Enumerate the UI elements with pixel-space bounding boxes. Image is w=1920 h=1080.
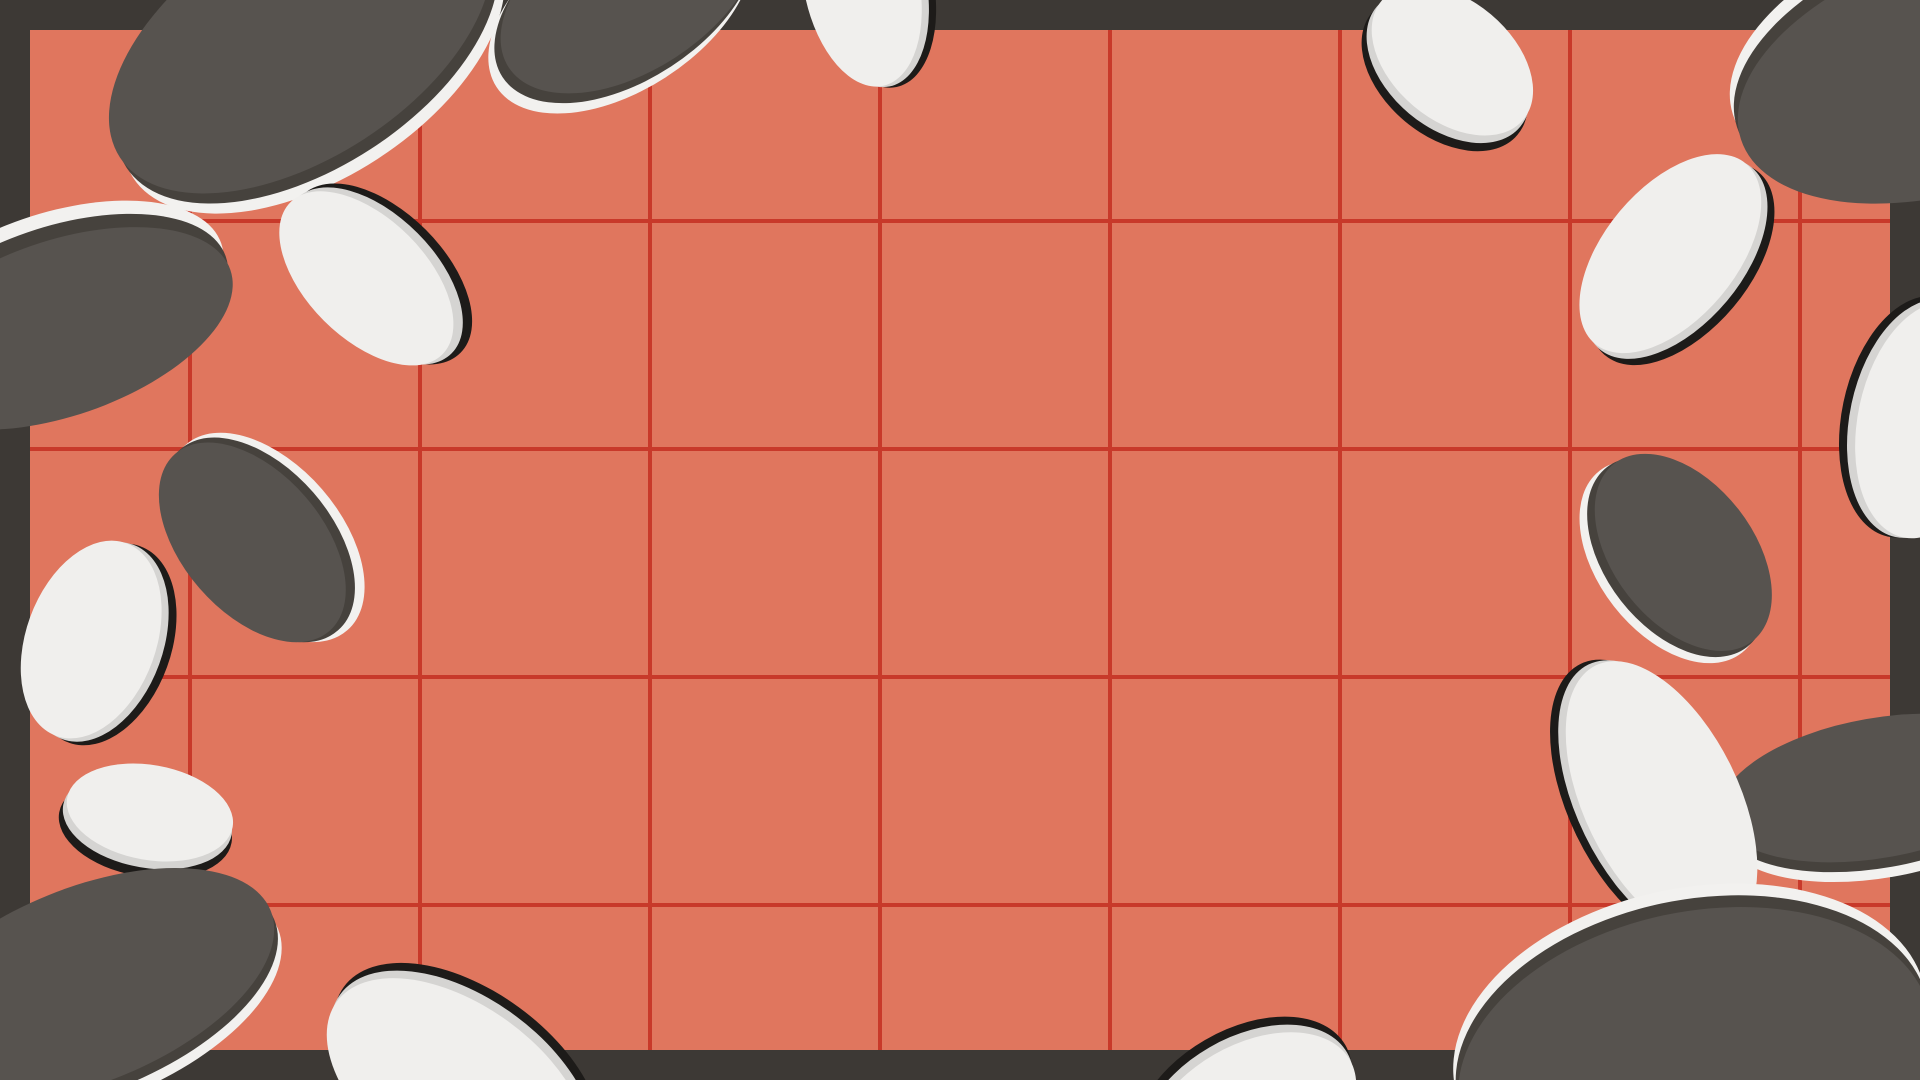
disc-back-face [1542,426,1798,697]
disc-front-face [1343,0,1562,165]
disc-front-face [1429,865,1920,1080]
reversi-disc-dark-7 [1704,0,1920,254]
disc-side-edge [1108,988,1384,1080]
disc-side-edge [1700,0,1920,241]
disc-side-edge [0,829,311,1080]
discs-layer [0,0,1920,1080]
reversi-disc-dark-15 [1708,691,1920,884]
disc-side-edge [1427,854,1920,1080]
reversi-disc-dark-9 [122,407,382,676]
disc-front-face [0,820,307,1080]
reversi-disc-dark-14 [0,820,307,1080]
reversi-disc-dark-4 [463,0,796,136]
disc-front-face [122,407,382,676]
disc-side-edge [62,0,551,266]
disc-side-edge [0,523,194,762]
disc-front-face [1708,691,1920,884]
disc-back-face [1510,629,1786,973]
disc-back-face [258,151,504,397]
disc-side-edge [790,0,947,98]
disc-side-edge [1710,701,1920,894]
disc-side-edge [55,757,241,882]
disc-front-face [1527,631,1798,969]
reversi-disc-dark-1 [56,0,545,256]
reversi-disc-white-10 [0,521,187,758]
disc-back-face [450,0,790,157]
reversi-disc-white-5 [784,0,939,97]
disc-side-edge [126,402,392,678]
disc-front-face [287,933,630,1080]
disc-front-face [1704,0,1920,254]
disc-back-face [6,524,202,766]
disc-front-face [56,0,545,256]
disc-side-edge [1548,125,1803,393]
disc-side-edge [290,925,636,1080]
disc-front-face [0,521,187,758]
disc-front-face [784,0,939,97]
reversi-disc-white-3 [248,160,485,397]
reversi-disc-white-19 [1114,997,1386,1080]
illustration-stage [0,0,1920,1080]
disc-back-face [1103,980,1383,1080]
disc-side-edge [1518,630,1792,971]
disc-front-face [0,187,259,470]
disc-back-face [0,838,314,1080]
disc-back-face [1712,711,1920,904]
reversi-disc-white-13 [59,751,241,874]
disc-front-face [59,751,241,874]
reversi-disc-dark-11 [1559,420,1808,683]
disc-back-face [1553,129,1810,399]
disc-side-edge [1550,423,1803,690]
disc-back-face [51,764,240,892]
disc-front-face [1835,288,1920,552]
disc-back-face [1818,282,1920,551]
disc-back-face [1332,0,1557,182]
reversi-disc-white-8 [1544,122,1796,387]
reversi-disc-white-18 [287,933,630,1080]
reversi-disc-white-12 [1835,288,1920,552]
disc-back-face [293,917,642,1080]
disc-front-face [1544,122,1796,387]
disc-side-edge [253,155,495,397]
disc-side-edge [457,0,793,147]
disc-front-face [1114,997,1386,1080]
disc-side-edge [1826,285,1920,551]
reversi-disc-dark-17 [1429,865,1920,1080]
reversi-disc-dark-2 [0,187,259,470]
disc-side-edge [0,173,254,456]
disc-back-face [796,0,954,99]
disc-front-face [1559,420,1808,683]
disc-back-face [130,396,403,679]
disc-front-face [248,160,485,397]
disc-side-edge [1337,0,1559,174]
disc-front-face [463,0,796,136]
reversi-disc-white-6 [1343,0,1562,165]
disc-back-face [1424,842,1920,1080]
disc-back-face [1696,0,1920,229]
reversi-disc-white-16 [1527,631,1798,969]
disc-back-face [69,0,558,276]
disc-back-face [0,160,250,443]
